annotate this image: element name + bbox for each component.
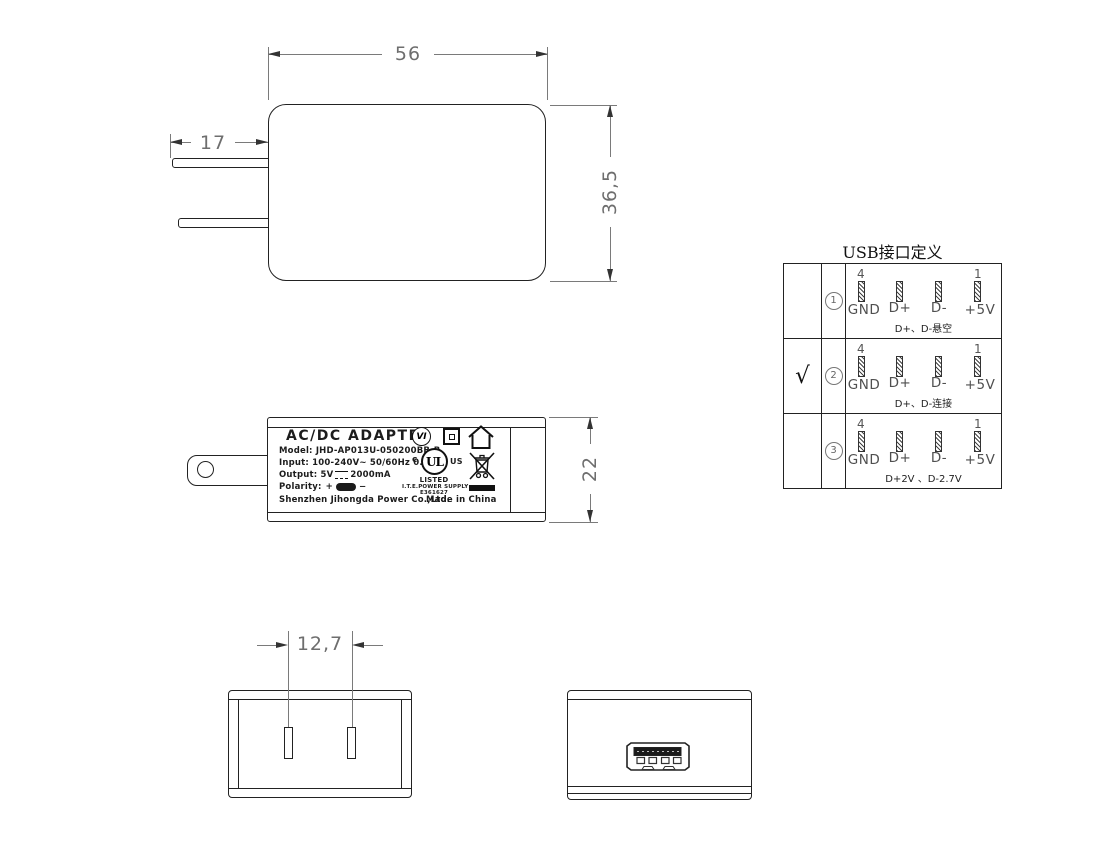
- label-company: Shenzhen Jihongda Power Co.,Ltd.: [279, 495, 450, 505]
- plug-face-outline: [228, 690, 412, 798]
- arrowhead-icon: [170, 139, 182, 145]
- prong-hole: [197, 461, 214, 478]
- pin-label-dplus: D+: [886, 300, 914, 316]
- circled-number: 2: [825, 367, 843, 385]
- usb-port-icon: [626, 742, 690, 771]
- pin-number-1: 1: [974, 342, 982, 356]
- table-row: 3 4 1 GND D+ D- +5V D+2V 、D-2.7V: [784, 413, 1001, 488]
- pin-number-4: 4: [857, 267, 865, 281]
- indoor-use-icon: [468, 425, 494, 449]
- case-seam-line: [228, 788, 412, 789]
- case-seam-line: [567, 786, 752, 787]
- pin-contact-icon: [896, 431, 903, 452]
- dim-prong-text: 17: [191, 133, 235, 153]
- arrowhead-icon: [536, 51, 548, 57]
- row-index-cell: 1: [822, 264, 846, 338]
- dimension-line: [364, 645, 383, 646]
- prong-slot-left: [284, 727, 293, 759]
- arrowhead-icon: [587, 417, 593, 429]
- circled-number: 3: [825, 442, 843, 460]
- ul-us-text: US: [450, 457, 463, 466]
- polarity-minus: −: [359, 482, 366, 492]
- pin-number-4: 4: [857, 417, 865, 431]
- ul-c-text: c: [412, 455, 418, 465]
- row-note: D+、D-悬空: [846, 320, 1001, 335]
- pin-label-dplus: D+: [886, 375, 914, 391]
- arrowhead-icon: [587, 510, 593, 522]
- circled-number: 1: [825, 292, 843, 310]
- arrowhead-icon: [352, 642, 364, 648]
- prong-slot-right: [347, 727, 356, 759]
- extension-line: [288, 631, 289, 727]
- technical-drawing-canvas: 56 17 36,5 AC/DC ADAPTER Model: JHD-AP01…: [0, 0, 1100, 861]
- extension-line: [549, 522, 598, 523]
- pin-label-5v: +5V: [962, 302, 998, 318]
- case-seam-line: [228, 699, 412, 700]
- arrowhead-icon: [276, 642, 288, 648]
- pin-contact-icon: [974, 431, 981, 452]
- efficiency-vi-icon: VI: [412, 427, 431, 446]
- dim-height-text: 36,5: [600, 157, 620, 227]
- row-pinout-cell: 4 1 GND D+ D- +5V D+、D-连接: [846, 339, 1001, 413]
- dim-width-text: 56: [382, 44, 434, 64]
- pin-contact-icon: [974, 281, 981, 302]
- arrowhead-icon: [607, 269, 613, 281]
- pin-contact-icon: [858, 281, 865, 302]
- row-index-cell: 3: [822, 414, 846, 488]
- pin-label-dplus: D+: [886, 450, 914, 466]
- pin-label-dminus: D-: [925, 375, 953, 391]
- row-note: D+、D-连接: [846, 395, 1001, 410]
- dim-pin-spacing-text: 12,7: [292, 634, 348, 654]
- case-seam-line: [567, 699, 752, 700]
- polarity-label: Polarity:: [279, 482, 322, 492]
- plug-prong-bottom: [178, 218, 270, 228]
- usb-pinout-table: 1 4 1 GND D+ D- +5V D+、D-悬空 √: [783, 263, 1002, 489]
- extension-line: [550, 281, 617, 282]
- label-output-suffix: 2000mA: [350, 470, 390, 480]
- weee-bin-icon: [469, 450, 495, 482]
- label-polarity: Polarity: + −: [279, 482, 366, 492]
- dimension-line: [257, 645, 276, 646]
- label-edge-line: [510, 427, 511, 512]
- pin-contact-icon: [858, 356, 865, 377]
- label-output-prefix: Output: 5V: [279, 470, 333, 480]
- ul-file-text: E361627: [415, 490, 453, 496]
- case-wall-line: [401, 699, 402, 788]
- ul-listed-text: LISTED: [414, 476, 454, 484]
- polarity-plus: +: [326, 482, 333, 492]
- row-check-cell: [784, 264, 822, 338]
- pin-contact-icon: [896, 281, 903, 302]
- label-output: Output: 5V 2000mA: [279, 470, 391, 480]
- pin-label-5v: +5V: [962, 452, 998, 468]
- arrowhead-icon: [268, 51, 280, 57]
- pin-label-5v: +5V: [962, 377, 998, 393]
- label-made-in: Made in China: [426, 495, 497, 505]
- plug-prong-top: [172, 158, 270, 168]
- pin-contact-icon: [896, 356, 903, 377]
- class-ii-icon: [443, 428, 460, 445]
- weee-bar: [469, 485, 495, 491]
- table-row: 1 4 1 GND D+ D- +5V D+、D-悬空: [784, 264, 1001, 338]
- efficiency-text: VI: [416, 432, 426, 442]
- pin-label-dminus: D-: [925, 450, 953, 466]
- pin-label-dminus: D-: [925, 300, 953, 316]
- pin-contact-icon: [935, 356, 942, 377]
- row-note: D+2V 、D-2.7V: [846, 470, 1001, 485]
- ul-mark-icon: UL: [421, 448, 448, 475]
- pin-label-gnd: GND: [846, 377, 882, 393]
- usb-table-title: USB接口定义: [783, 239, 1002, 263]
- row-pinout-cell: 4 1 GND D+ D- +5V D+2V 、D-2.7V: [846, 414, 1001, 488]
- arrowhead-icon: [256, 139, 268, 145]
- ul-logo-text: UL: [426, 455, 443, 469]
- row-check-cell: √: [784, 339, 822, 413]
- class-ii-inner-square: [449, 434, 455, 440]
- row-index-cell: 2: [822, 339, 846, 413]
- pin-contact-icon: [858, 431, 865, 452]
- dim-side-height-text: 22: [580, 444, 600, 494]
- row-pinout-cell: 4 1 GND D+ D- +5V D+、D-悬空: [846, 264, 1001, 338]
- pin-contact-icon: [974, 356, 981, 377]
- dc-symbol-icon: [335, 471, 348, 479]
- pin-contact-icon: [935, 281, 942, 302]
- pin-number-4: 4: [857, 342, 865, 356]
- adapter-body-outline: [268, 104, 546, 281]
- case-wall-line: [238, 699, 239, 788]
- arrowhead-icon: [607, 105, 613, 117]
- table-row: √ 2 4 1 GND D+ D- +5V D+、D-连接: [784, 338, 1001, 413]
- case-seam-line: [567, 793, 752, 794]
- case-seam-line: [267, 512, 546, 513]
- pin-number-1: 1: [974, 417, 982, 431]
- pin-contact-icon: [935, 431, 942, 452]
- pin-label-gnd: GND: [846, 302, 882, 318]
- pin-number-1: 1: [974, 267, 982, 281]
- label-title: AC/DC ADAPTER: [286, 428, 432, 444]
- usb-polarity-symbol-icon: [336, 483, 356, 491]
- pin-label-gnd: GND: [846, 452, 882, 468]
- row-check-cell: [784, 414, 822, 488]
